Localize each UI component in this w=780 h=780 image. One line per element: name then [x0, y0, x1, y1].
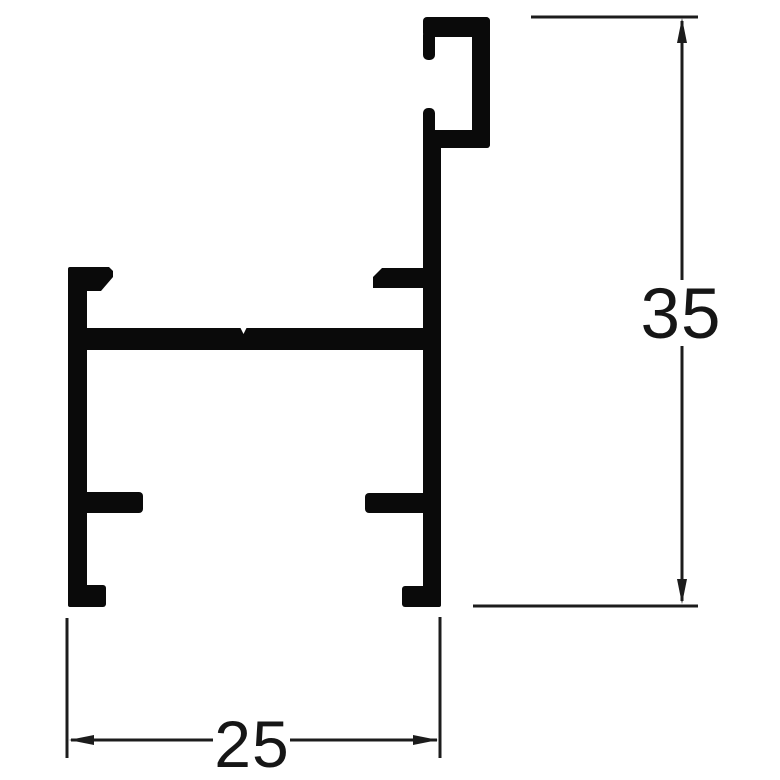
profile-right-upper-flange	[373, 268, 430, 288]
dim-label-height: 35	[641, 275, 722, 354]
drawing-background	[0, 0, 780, 780]
profile-hook-right-wall	[472, 17, 490, 148]
dim-label-width: 25	[214, 707, 289, 780]
profile-right-stem	[423, 130, 441, 607]
profile-right-lower-flange	[365, 493, 430, 513]
drawing-canvas: 35 25	[0, 0, 780, 780]
profile-left-mid-flange	[80, 492, 143, 513]
profile-hook-upper-lip	[423, 30, 435, 60]
profile-left-foot	[68, 585, 106, 607]
profile-left-wall	[68, 267, 87, 607]
profile-web	[85, 328, 430, 350]
profile-hook-lower-lip	[423, 108, 435, 138]
profile-right-foot	[402, 586, 441, 607]
profile-drawing: 35 25	[0, 0, 780, 780]
